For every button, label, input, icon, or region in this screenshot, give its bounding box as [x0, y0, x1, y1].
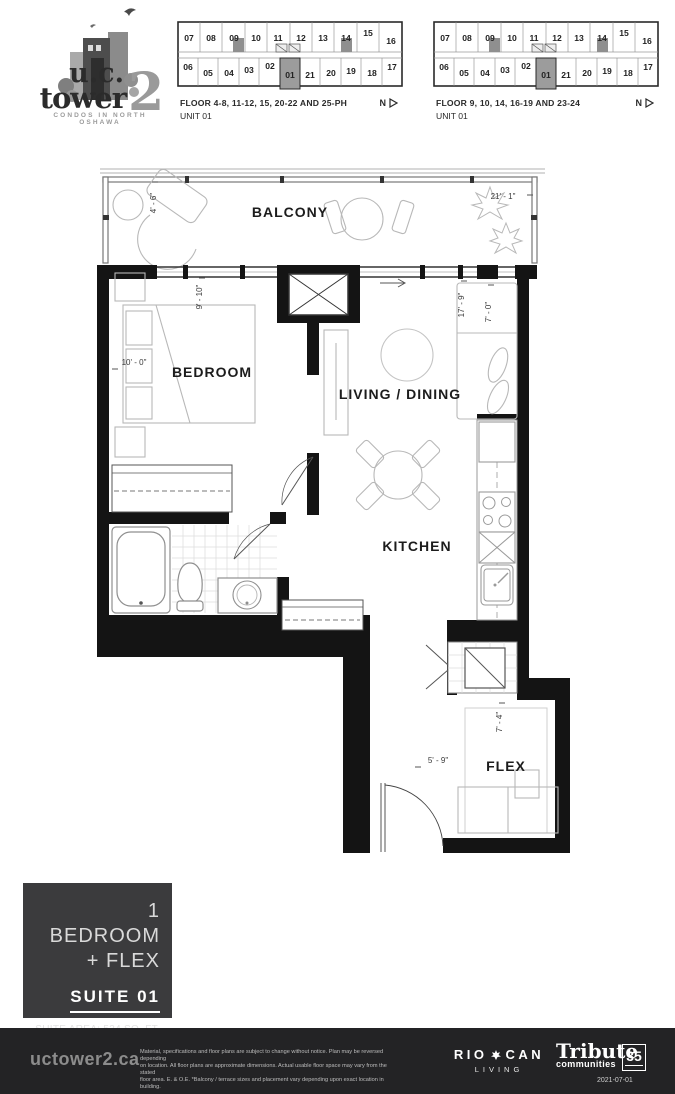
svg-text:02: 02: [521, 61, 531, 71]
svg-text:20: 20: [326, 68, 336, 78]
keyplan-caption: FLOOR 4-8, 11-12, 15, 20-22 AND 25-PH UN…: [180, 98, 404, 121]
floorplan-sheet: u.c. tower 2 CONDOS IN NORTH OSHAWA: [0, 0, 675, 1094]
flex-width-dim: 5' - 9": [428, 756, 449, 765]
disclaimer-line: floor area. E. & O.E. *Balcony / terrace…: [140, 1077, 402, 1091]
svg-text:08: 08: [462, 33, 472, 43]
tribute-35-badge: 35: [622, 1044, 646, 1071]
svg-text:18: 18: [367, 68, 377, 78]
svg-text:06: 06: [183, 62, 193, 72]
svg-text:17: 17: [643, 62, 653, 72]
bathroom: [112, 524, 277, 613]
riocan-living-logo: RIO CAN LIVING: [448, 1047, 550, 1074]
dining-table-set: [355, 439, 441, 511]
svg-text:10: 10: [507, 33, 517, 43]
svg-text:13: 13: [574, 33, 584, 43]
svg-text:07: 07: [184, 33, 194, 43]
svg-text:05: 05: [203, 68, 213, 78]
laundry-doors: [426, 645, 448, 689]
footer-bar: uctower2.ca Material, specifications and…: [0, 1028, 675, 1094]
svg-text:13: 13: [318, 33, 328, 43]
kitchen: KITCHEN: [355, 420, 517, 620]
dishwasher: [479, 532, 515, 563]
svg-text:11: 11: [529, 33, 538, 43]
svg-text:05: 05: [459, 68, 469, 78]
tv-unit: [324, 330, 348, 435]
keyplan-caption: FLOOR 9, 10, 14, 16-19 AND 23-24 UNIT 01: [436, 98, 660, 121]
keyplan-drawing: 07 08 09 10 11 12 13 14 15 16 06 05 04 0…: [432, 8, 660, 96]
suite-type-line2: + FLEX: [31, 949, 160, 974]
balcony-width-dim: 21' - 1": [491, 192, 516, 201]
shaft: [277, 265, 360, 323]
north-arrow-icon: [389, 98, 398, 108]
svg-text:21: 21: [561, 70, 571, 80]
kitchen-counter: [477, 420, 517, 620]
keyplan-unit-label: UNIT 01: [436, 111, 660, 121]
svg-text:12: 12: [552, 33, 562, 43]
bathtub: [112, 527, 170, 613]
keyplan-floors-4-8: 07 08 09 10 11 12 13 14 15 16 06 05 04 0…: [176, 8, 404, 101]
flex-desk: [458, 770, 558, 833]
flex-depth-dim: 7' - 4": [495, 712, 504, 733]
legal-disclaimer: Material, specifications and floor plans…: [140, 1049, 402, 1090]
north-arrow-icon: [645, 98, 654, 108]
bedroom-width-dim: 9' - 10": [195, 284, 204, 309]
svg-text:03: 03: [500, 65, 510, 75]
svg-text:19: 19: [346, 66, 356, 76]
toilet: [177, 563, 203, 611]
keyplan-floors-9-24: 07 08 09 10 11 12 13 14 15 16 06 05 04 0…: [432, 8, 660, 101]
entry-door: [381, 783, 443, 852]
suite-floorplan: BALCONY 4' - 6" 21' - 1": [90, 165, 590, 880]
svg-text:10: 10: [251, 33, 261, 43]
bedroom-depth-dim: 10' - 0": [122, 358, 147, 367]
svg-text:03: 03: [244, 65, 254, 75]
plan-date: 2021-07-01: [597, 1077, 633, 1084]
disclaimer-line: Material, specifications and floor plans…: [140, 1049, 402, 1063]
svg-text:08: 08: [206, 33, 216, 43]
laundry-closet: [426, 642, 517, 693]
svg-text:01: 01: [541, 70, 551, 80]
svg-text:16: 16: [642, 36, 652, 46]
north-label: N: [636, 98, 643, 108]
balcony-table-set: [323, 198, 414, 240]
bedroom-closet: [112, 465, 232, 512]
suite-type-line1: 1 BEDROOM: [31, 899, 160, 949]
balcony-depth-dim: 4' - 6": [149, 193, 158, 214]
riocan-living-text: LIVING: [448, 1065, 550, 1074]
logo-graphic: u.c. tower 2: [28, 4, 168, 124]
keyplan-floors-label: FLOOR 9, 10, 14, 16-19 AND 23-24: [436, 98, 660, 108]
balcony-railing: [103, 177, 537, 263]
svg-text:09: 09: [485, 33, 495, 43]
keyplan-floors-label: FLOOR 4-8, 11-12, 15, 20-22 AND 25-PH: [180, 98, 404, 108]
bird-icon: [90, 24, 96, 28]
bird-icon: [124, 8, 136, 16]
svg-text:17: 17: [387, 62, 397, 72]
svg-text:16: 16: [386, 36, 396, 46]
svg-text:14: 14: [597, 33, 607, 43]
riocan-text-right: CAN: [505, 1047, 544, 1062]
svg-text:07: 07: [440, 33, 450, 43]
svg-text:09: 09: [229, 33, 239, 43]
bedroom-label: BEDROOM: [172, 364, 252, 380]
website-link[interactable]: uctower2.ca: [30, 1049, 140, 1070]
uc-tower2-logo: u.c. tower 2 CONDOS IN NORTH OSHAWA: [28, 4, 168, 129]
svg-text:01: 01: [285, 70, 295, 80]
entry-direction-arrow: [380, 279, 405, 287]
logo-line2: tower: [40, 81, 128, 115]
svg-text:04: 04: [480, 68, 490, 78]
keyplan-unit-label: UNIT 01: [180, 111, 404, 121]
svg-text:02: 02: [265, 61, 275, 71]
svg-text:18: 18: [623, 68, 633, 78]
svg-text:12: 12: [296, 33, 306, 43]
disclaimer-line: on location. All floor plans are approxi…: [140, 1063, 402, 1077]
svg-text:11: 11: [273, 33, 282, 43]
suite-info-panel: 1 BEDROOM + FLEX SUITE 01 SUITE AREA: 53…: [23, 883, 172, 1018]
maple-leaf-icon: [491, 1050, 501, 1060]
riocan-text-left: RIO: [454, 1047, 488, 1062]
fridge: [479, 422, 515, 462]
area-rug: [381, 329, 433, 381]
svg-text:20: 20: [582, 68, 592, 78]
bathroom-door: [234, 524, 270, 559]
entry-closet: [282, 600, 363, 630]
north-label: N: [380, 98, 387, 108]
living-width-dim: 7' - 0": [484, 302, 493, 323]
vanity-sink: [218, 578, 277, 613]
suite-number: SUITE 01: [70, 987, 160, 1013]
flex-label: FLEX: [486, 758, 526, 774]
balcony-label: BALCONY: [252, 204, 328, 220]
balcony: BALCONY 4' - 6" 21' - 1": [100, 167, 545, 269]
badge-number: 35: [625, 1048, 643, 1066]
living-length-dim: 17' - 9": [457, 292, 466, 317]
north-indicator: N: [380, 98, 399, 108]
kitchen-label: KITCHEN: [382, 538, 451, 554]
flex-room: FLEX 5' - 9" 7' - 4": [415, 703, 558, 833]
stove: [479, 492, 515, 532]
svg-text:14: 14: [341, 33, 351, 43]
keyplan-drawing: 07 08 09 10 11 12 13 14 15 16 06 05 04 0…: [176, 8, 404, 96]
svg-text:21: 21: [305, 70, 315, 80]
svg-text:04: 04: [224, 68, 234, 78]
svg-text:15: 15: [619, 28, 629, 38]
living-dining-label: LIVING / DINING: [339, 386, 461, 402]
logo-tagline: CONDOS IN NORTH OSHAWA: [32, 112, 168, 126]
svg-text:15: 15: [363, 28, 373, 38]
kitchen-sink: [481, 565, 513, 605]
svg-text:19: 19: [602, 66, 612, 76]
svg-text:06: 06: [439, 62, 449, 72]
north-indicator: N: [636, 98, 655, 108]
